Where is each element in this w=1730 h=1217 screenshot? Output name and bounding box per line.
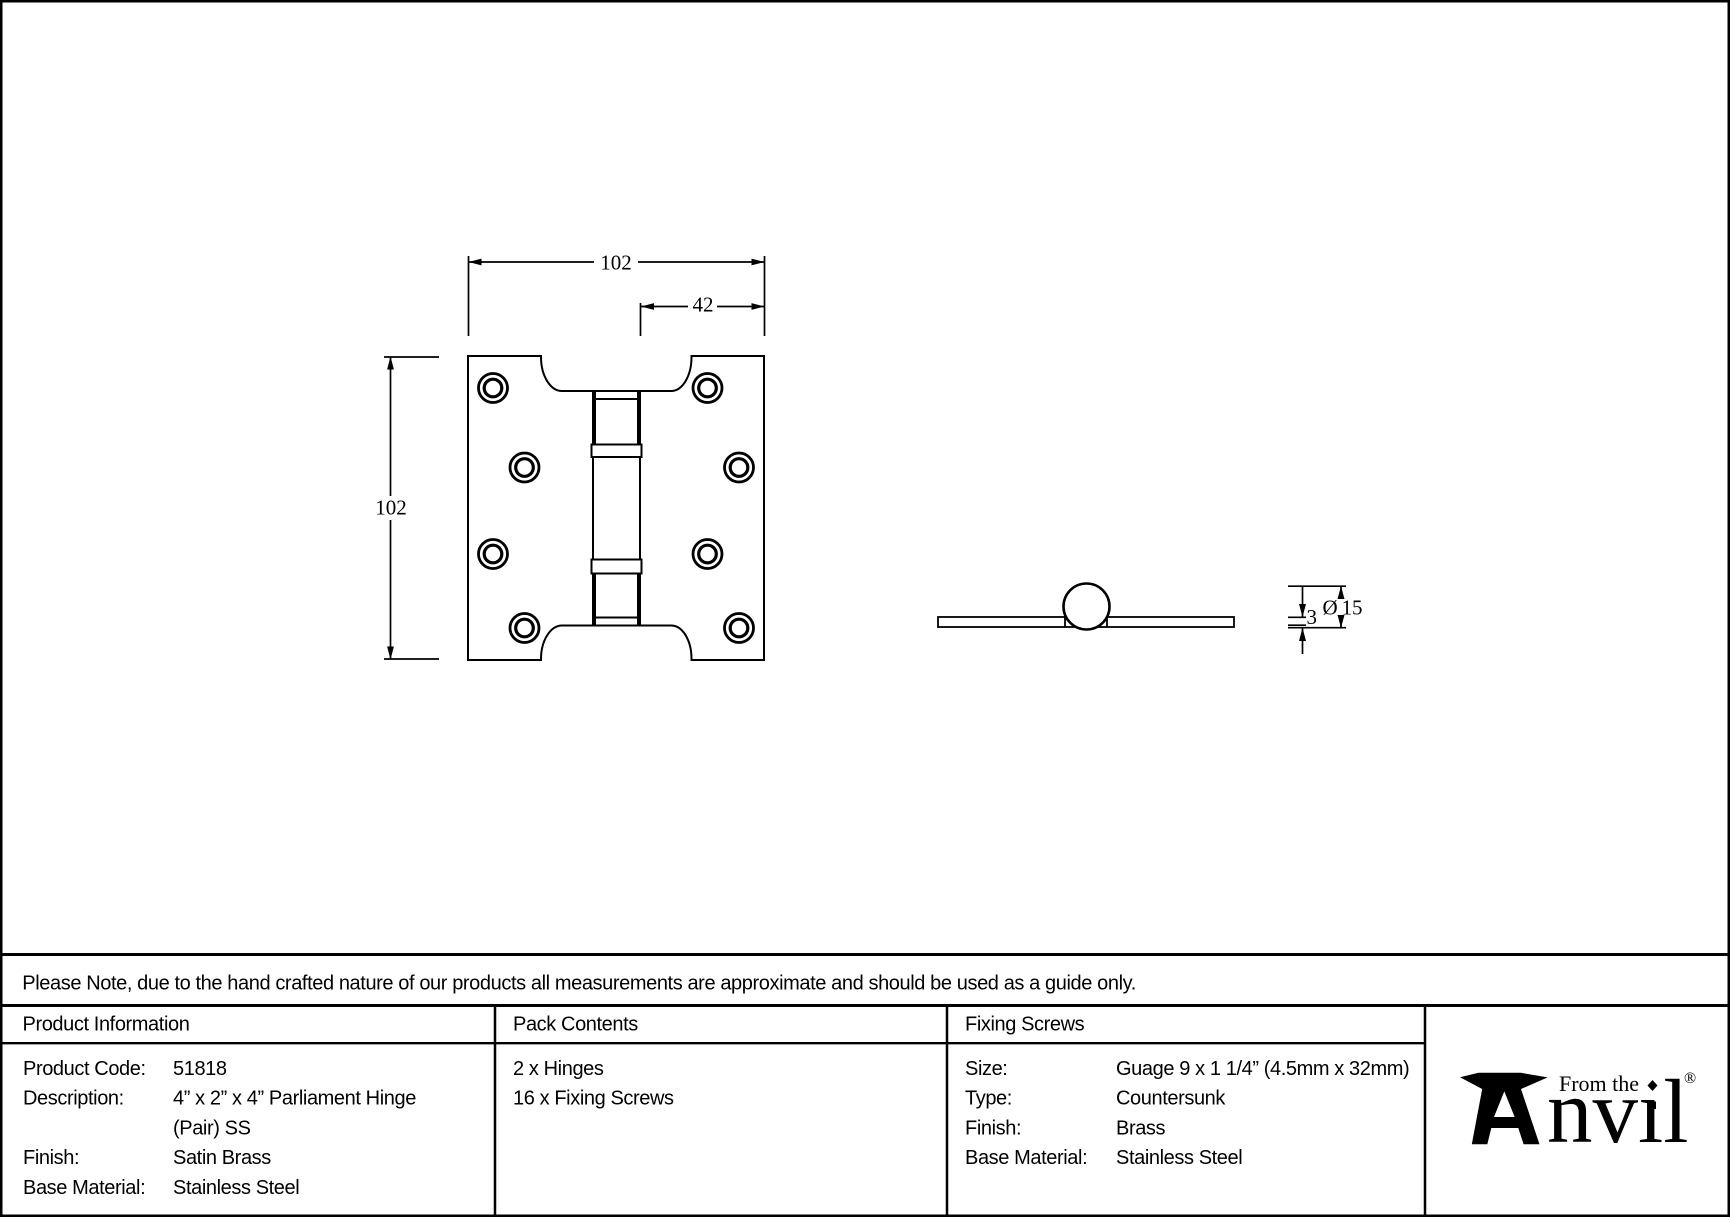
svg-text:Pack Contents: Pack Contents (513, 1014, 638, 1036)
svg-text:16 x Fixing Screws: 16 x Fixing Screws (513, 1088, 674, 1110)
svg-text:51818: 51818 (173, 1058, 227, 1080)
svg-text:Countersunk: Countersunk (1116, 1088, 1226, 1110)
svg-text:Base Material:: Base Material: (965, 1147, 1087, 1169)
svg-text:42: 42 (693, 293, 714, 317)
svg-text:Guage 9 x 1 1/4” (4.5mm x 32mm: Guage 9 x 1 1/4” (4.5mm x 32mm) (1116, 1058, 1409, 1080)
svg-text:(Pair) SS: (Pair) SS (173, 1117, 251, 1139)
svg-text:Please Note, due to the hand c: Please Note, due to the hand crafted nat… (22, 973, 1136, 995)
svg-text:Description:: Description: (23, 1088, 124, 1110)
svg-text:Finish:: Finish: (965, 1117, 1021, 1139)
svg-text:4” x 2” x 4” Parliament Hinge: 4” x 2” x 4” Parliament Hinge (173, 1088, 416, 1110)
svg-text:Product Code:: Product Code: (23, 1058, 146, 1080)
svg-text:2 x Hinges: 2 x Hinges (513, 1058, 604, 1080)
svg-text:Product Information: Product Information (23, 1014, 190, 1036)
svg-text:Type:: Type: (965, 1088, 1012, 1110)
svg-text:Stainless Steel: Stainless Steel (1116, 1147, 1242, 1169)
svg-text:Fixing Screws: Fixing Screws (965, 1014, 1085, 1036)
svg-text:102: 102 (600, 251, 632, 275)
svg-text:15: 15 (1342, 596, 1363, 620)
svg-text:From the: From the (1559, 1071, 1639, 1096)
svg-text:102: 102 (375, 496, 407, 520)
svg-text:®: ® (1684, 1070, 1696, 1087)
svg-text:Satin Brass: Satin Brass (173, 1147, 271, 1169)
svg-text:Ø: Ø (1323, 596, 1338, 620)
svg-text:Finish:: Finish: (23, 1147, 79, 1169)
svg-text:Base Material:: Base Material: (23, 1177, 145, 1199)
svg-text:Size:: Size: (965, 1058, 1007, 1080)
svg-text:Stainless Steel: Stainless Steel (173, 1177, 299, 1199)
svg-text:Brass: Brass (1116, 1117, 1166, 1139)
svg-text:3: 3 (1307, 605, 1318, 629)
